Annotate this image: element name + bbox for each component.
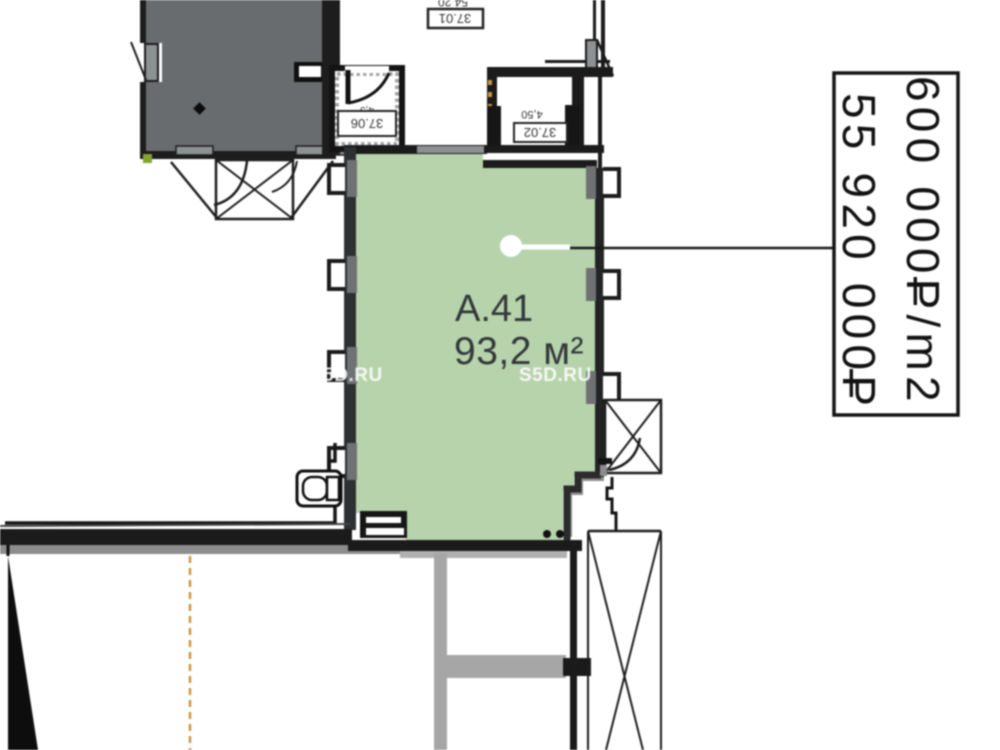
svg-text:54,20: 54,20	[438, 0, 468, 9]
svg-text:55 920 000P: 55 920 000P	[833, 93, 885, 411]
svg-text:37.01: 37.01	[439, 11, 472, 26]
svg-text:4,50: 4,50	[521, 108, 542, 120]
svg-text:A.41: A.41	[455, 288, 533, 330]
svg-text:37.02: 37.02	[524, 125, 557, 140]
svg-text:37.06: 37.06	[351, 116, 384, 131]
svg-text:600 000P/m2: 600 000P/m2	[897, 76, 949, 407]
svg-text:S5D.RU: S5D.RU	[310, 365, 383, 386]
svg-text:S5D.RU: S5D.RU	[519, 365, 592, 386]
